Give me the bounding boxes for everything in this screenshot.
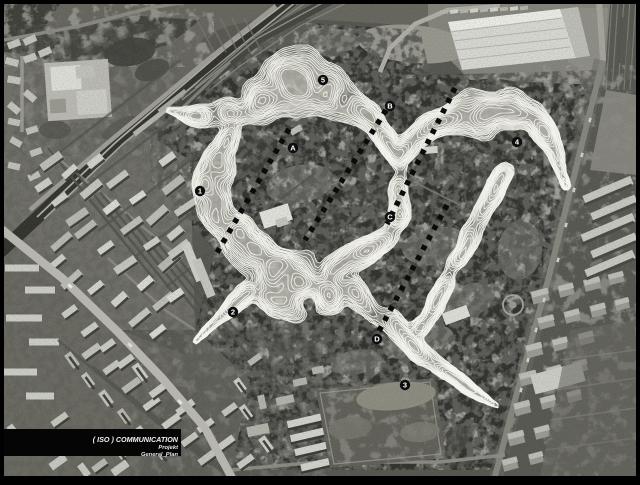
svg-text:Projekt: Projekt: [158, 445, 179, 451]
svg-text:General_Plan: General_Plan: [141, 452, 179, 458]
svg-text:5: 5: [321, 76, 325, 85]
svg-text:3: 3: [403, 381, 407, 390]
svg-text:2: 2: [231, 308, 235, 317]
svg-text:D: D: [374, 335, 380, 344]
svg-text:( ISO ) COMMUNICATION: ( ISO ) COMMUNICATION: [93, 435, 179, 444]
svg-text:C: C: [387, 213, 393, 222]
svg-text:B: B: [387, 102, 393, 111]
svg-text:A: A: [290, 144, 296, 153]
svg-text:1: 1: [198, 187, 202, 196]
